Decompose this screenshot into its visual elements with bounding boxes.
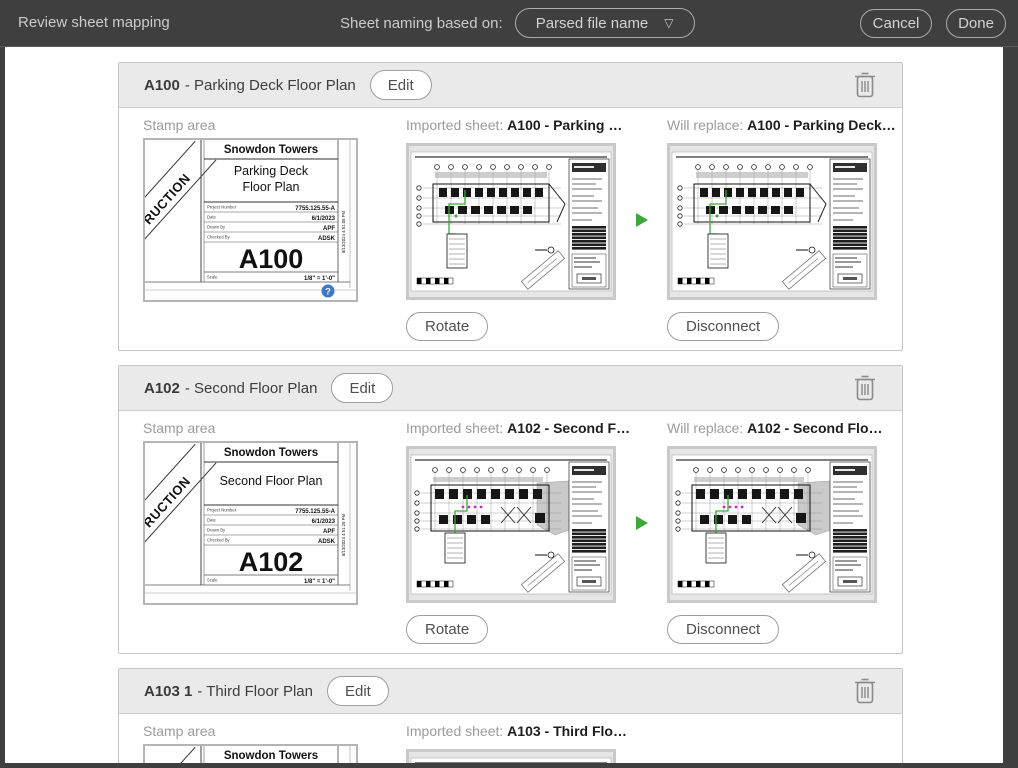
- sheet-number: A102: [144, 380, 180, 397]
- will-replace-thumbnail[interactable]: [667, 446, 877, 603]
- svg-text:A100: A100: [239, 244, 304, 274]
- edit-button[interactable]: Edit: [327, 676, 389, 706]
- svg-text:Snowdon Towers: Snowdon Towers: [224, 447, 318, 459]
- svg-text:ADSK: ADSK: [318, 539, 336, 545]
- delete-button[interactable]: [853, 71, 877, 99]
- maps-to-arrow-icon: [635, 515, 649, 531]
- card-header: A100 - Parking Deck Floor Plan Edit: [119, 63, 902, 108]
- imported-sheet-thumbnail[interactable]: [406, 749, 616, 763]
- will-replace-thumbnail[interactable]: [667, 143, 877, 300]
- svg-text:Checked By: Checked By: [207, 235, 230, 240]
- svg-text:1/8" = 1'-0": 1/8" = 1'-0": [304, 579, 335, 585]
- rotate-button[interactable]: Rotate: [406, 312, 488, 341]
- svg-text:Project Number: Project Number: [207, 508, 237, 513]
- stamp-thumbnail[interactable]: RUCTION Snowdon Towers Second Floor Plan…: [143, 441, 358, 605]
- svg-text:6/1/2023: 6/1/2023: [312, 519, 336, 525]
- svg-text:Snowdon Towers: Snowdon Towers: [224, 750, 318, 762]
- sheet-naming-value: Parsed file name: [536, 15, 649, 32]
- sheet-mapping-list: A100 - Parking Deck Floor Plan Edit Stam…: [5, 47, 1008, 763]
- svg-text:APF: APF: [323, 529, 335, 535]
- trash-icon: [853, 374, 877, 402]
- svg-text:?: ?: [325, 286, 331, 297]
- svg-text:1/8" = 1'-0": 1/8" = 1'-0": [304, 276, 335, 282]
- sheet-number: A100: [144, 77, 180, 94]
- imported-sheet-thumbnail[interactable]: [406, 446, 616, 603]
- sheet-card-a103: A103 1 - Third Floor Plan Edit Stamp are…: [118, 668, 903, 763]
- page-title: Review sheet mapping: [18, 0, 170, 46]
- imported-sheet-value: A100 - Parking …: [507, 117, 622, 133]
- trash-icon: [853, 71, 877, 99]
- imported-sheet-thumbnail[interactable]: [406, 143, 616, 300]
- sheet-naming-label: Sheet naming based on:: [340, 15, 503, 32]
- sheet-naming-group: Sheet naming based on: Parsed file name …: [340, 0, 695, 46]
- svg-text:APF: APF: [323, 226, 335, 232]
- will-replace-label: Will replace: A102 - Second Flo…: [667, 418, 877, 441]
- card-header: A103 1 - Third Floor Plan Edit: [119, 669, 902, 714]
- svg-text:Project Number: Project Number: [207, 205, 237, 210]
- svg-text:7755.125.55-A: 7755.125.55-A: [295, 206, 335, 212]
- sheet-title: - Second Floor Plan: [185, 380, 318, 397]
- stamp-area-label: Stamp area: [143, 418, 358, 441]
- chevron-down-icon: ▽: [664, 17, 673, 29]
- svg-text:Drawn By: Drawn By: [207, 225, 226, 230]
- sheet-title: - Third Floor Plan: [197, 683, 313, 700]
- svg-text:8/13/2024 4:51:08 PM: 8/13/2024 4:51:08 PM: [341, 210, 346, 253]
- svg-text:A102: A102: [239, 547, 304, 577]
- edit-button[interactable]: Edit: [331, 373, 393, 403]
- maps-to-arrow-icon: [635, 212, 649, 228]
- stamp-area-label: Stamp area: [143, 115, 358, 138]
- svg-text:6/1/2023: 6/1/2023: [312, 216, 336, 222]
- imported-sheet-value: A102 - Second F…: [507, 420, 630, 436]
- edit-button[interactable]: Edit: [370, 70, 432, 100]
- imported-sheet-label: Imported sheet: A102 - Second F…: [406, 418, 616, 441]
- toolbar: Review sheet mapping Sheet naming based …: [0, 0, 1018, 47]
- disconnect-button[interactable]: Disconnect: [667, 615, 779, 644]
- svg-text:Parking Deck: Parking Deck: [234, 164, 309, 178]
- disconnect-button[interactable]: Disconnect: [667, 312, 779, 341]
- sheet-title: - Parking Deck Floor Plan: [185, 77, 356, 94]
- done-button[interactable]: Done: [946, 9, 1006, 38]
- svg-text:Drawn By: Drawn By: [207, 528, 226, 533]
- svg-text:Second Floor Plan: Second Floor Plan: [220, 474, 323, 488]
- svg-text:8/13/2024 4:51:28 PM: 8/13/2024 4:51:28 PM: [341, 513, 346, 556]
- trash-icon: [853, 677, 877, 705]
- svg-text:Snowdon Towers: Snowdon Towers: [224, 144, 318, 156]
- stamp-thumbnail[interactable]: RUCTION Snowdon Towers Parking Deck Floo…: [143, 138, 358, 302]
- svg-text:7755.125.55-A: 7755.125.55-A: [295, 509, 335, 515]
- imported-sheet-label: Imported sheet: A100 - Parking …: [406, 115, 616, 138]
- delete-button[interactable]: [853, 374, 877, 402]
- imported-sheet-label: Imported sheet: A103 - Third Flo…: [406, 721, 616, 744]
- card-header: A102 - Second Floor Plan Edit: [119, 366, 902, 411]
- svg-text:Date: Date: [207, 215, 217, 220]
- svg-text:Scale: Scale: [207, 275, 218, 280]
- svg-text:Date: Date: [207, 518, 217, 523]
- sheet-naming-dropdown[interactable]: Parsed file name ▽: [515, 8, 695, 38]
- delete-button[interactable]: [853, 677, 877, 705]
- sheet-card-a102: A102 - Second Floor Plan Edit Stamp area…: [118, 365, 903, 654]
- sheet-card-a100: A100 - Parking Deck Floor Plan Edit Stam…: [118, 62, 903, 351]
- svg-text:Scale: Scale: [207, 578, 218, 583]
- svg-text:ADSK: ADSK: [318, 236, 336, 242]
- cancel-button[interactable]: Cancel: [860, 9, 932, 38]
- rotate-button[interactable]: Rotate: [406, 615, 488, 644]
- svg-text:Checked By: Checked By: [207, 538, 230, 543]
- stamp-thumbnail[interactable]: RUCTION Snowdon Towers Third Floor Plan …: [143, 744, 358, 763]
- will-replace-value: A102 - Second Flo…: [747, 420, 882, 436]
- imported-sheet-value: A103 - Third Flo…: [507, 723, 627, 739]
- will-replace-value: A100 - Parking Deck…: [747, 117, 896, 133]
- will-replace-label: Will replace: A100 - Parking Deck…: [667, 115, 877, 138]
- app-window: Review sheet mapping Sheet naming based …: [0, 0, 1018, 768]
- stamp-area-label: Stamp area: [143, 721, 358, 744]
- sheet-number: A103 1: [144, 683, 192, 700]
- svg-text:Floor Plan: Floor Plan: [243, 180, 300, 194]
